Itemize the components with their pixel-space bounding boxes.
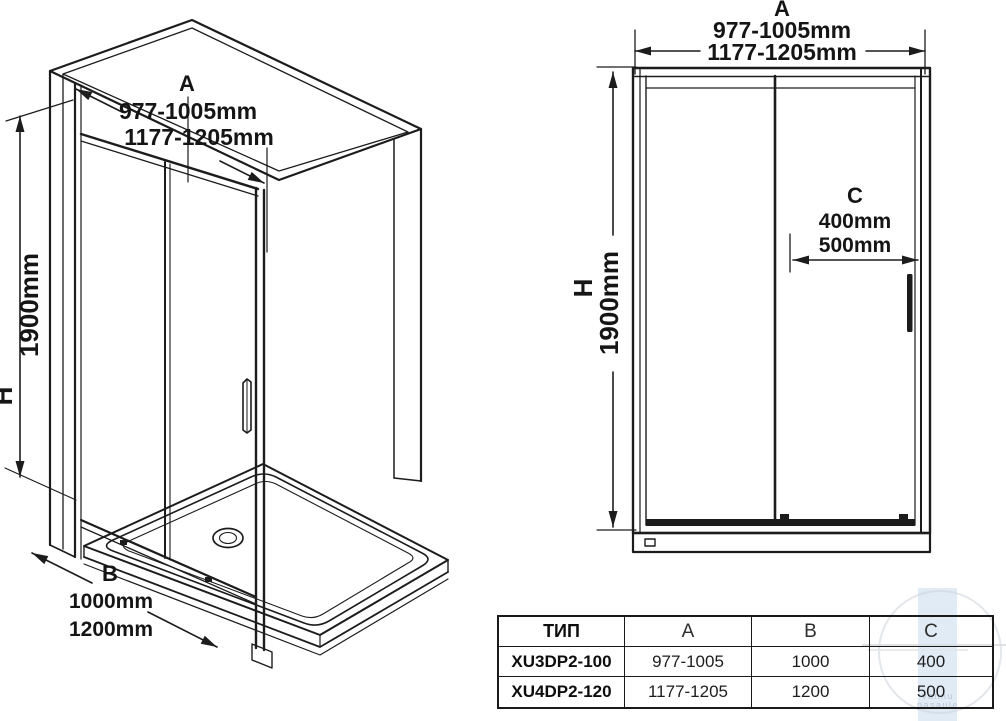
dim-b-value-small: 1000mm xyxy=(69,590,153,613)
table-row-type: XU4DP2-120 xyxy=(499,677,625,707)
dim-a-label: A xyxy=(179,71,195,96)
dim-a-range-large: 1177-1205mm xyxy=(124,124,274,150)
table-header-a: A xyxy=(625,617,752,647)
dim-c-value-large: 500mm xyxy=(819,234,891,257)
table-cell-a: 1177-1205 xyxy=(625,677,752,707)
door-handle-icon xyxy=(243,379,251,433)
dim-b-label: B xyxy=(102,561,118,586)
table-header-b: B xyxy=(752,617,870,647)
technical-drawing-page: A 977-1005mm 1177-1205mm H 1900mm B 1000… xyxy=(0,0,1006,721)
dim-h-value: 1900mm xyxy=(594,251,624,355)
table-header-c: C xyxy=(870,617,992,647)
isometric-view: A 977-1005mm 1177-1205mm H 1900mm B 1000… xyxy=(0,0,500,721)
table-cell-c: 400 xyxy=(870,647,992,677)
dim-a-range-large: 1177-1205mm xyxy=(707,39,857,65)
table-header-type: ТИП xyxy=(499,617,625,647)
dim-c-value-small: 400mm xyxy=(819,210,891,233)
door-frame xyxy=(633,68,930,533)
dim-b-value-large: 1200mm xyxy=(69,618,153,641)
table-cell-c: 500 xyxy=(870,677,992,707)
dim-h-label: H xyxy=(0,387,18,406)
front-elevation-view: A 977-1005mm 1177-1205mm C 400mm 500mm H… xyxy=(560,0,1006,580)
drain-icon xyxy=(213,529,243,548)
table-cell-b: 1200 xyxy=(752,677,870,707)
shower-tray-front xyxy=(633,533,930,552)
dim-a-range-small: 977-1005mm xyxy=(119,98,257,124)
table-cell-b: 1000 xyxy=(752,647,870,677)
table-row-type: XU3DP2-100 xyxy=(499,647,625,677)
spec-table: ТИП A B C XU3DP2-100 977-1005 1000 400 X… xyxy=(497,615,994,709)
table-cell-a: 977-1005 xyxy=(625,647,752,677)
dim-h-value: 1900mm xyxy=(14,253,44,357)
door-handle-icon xyxy=(907,274,913,332)
dim-c-label: C xyxy=(847,183,863,208)
sliding-door xyxy=(81,134,272,668)
